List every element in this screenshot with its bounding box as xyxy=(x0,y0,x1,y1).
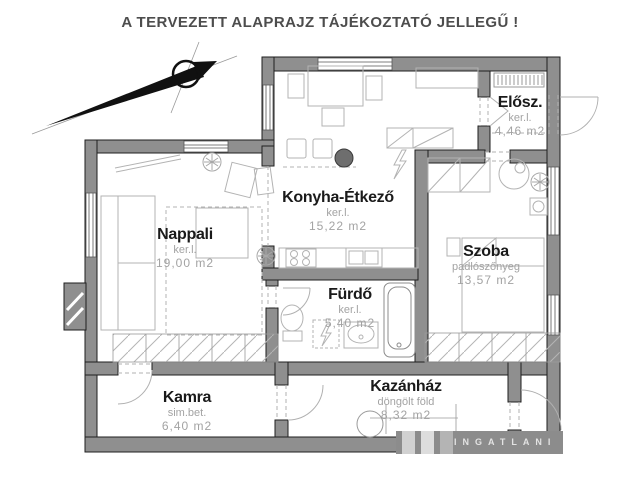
sofa-icon xyxy=(101,196,155,330)
room-label-szoba: Szoba padlószőnyeg 13,57 m2 xyxy=(452,243,520,287)
coat-rack-icon xyxy=(494,73,544,87)
window xyxy=(86,193,96,257)
room-name: Elősz. xyxy=(495,94,545,111)
room-material: ker.l. xyxy=(156,244,214,256)
room-area: 4,46 m2 xyxy=(495,125,545,138)
watermark-logo-icon xyxy=(421,422,434,465)
room-area: 6,40 m2 xyxy=(162,420,212,433)
room-label-furdo: Fürdő ker.l. 5,40 m2 xyxy=(325,286,375,330)
room-label-kamra: Kamra sim.bet. 6,40 m2 xyxy=(162,389,212,433)
room-label-kazanhaz: Kazánház döngölt föld 8,32 m2 xyxy=(370,378,441,422)
window xyxy=(548,295,559,335)
plant-icon xyxy=(257,247,275,265)
room-label-elosz: Elősz. ker.l. 4,46 m2 xyxy=(495,94,545,138)
room-name: Szoba xyxy=(452,243,520,260)
room-material: ker.l. xyxy=(325,304,375,316)
stove-icon xyxy=(286,249,316,267)
kitchen-cabinet-icon xyxy=(387,68,478,148)
plant-icon xyxy=(531,173,549,191)
watermark-logo-icon xyxy=(440,428,453,456)
room-area: 13,57 m2 xyxy=(452,274,520,287)
kitchen-counter-icon xyxy=(279,248,418,268)
room-material: ker.l. xyxy=(495,112,545,124)
room-name: Konyha-Étkező xyxy=(282,189,394,206)
bar-stool-icon xyxy=(313,139,332,158)
floor-plan-drawing xyxy=(0,0,640,480)
room-material: sim.bet. xyxy=(162,407,212,419)
room-label-konyha: Konyha-Étkező ker.l. 15,22 m2 xyxy=(282,189,394,233)
page-title: A TERVEZETT ALAPRAJZ TÁJÉKOZTATÓ JELLEGŰ… xyxy=(0,14,640,31)
room-name: Kamra xyxy=(162,389,212,406)
lightning-icon xyxy=(394,150,406,179)
room-material: ker.l. xyxy=(282,207,394,219)
watermark-logo-icon xyxy=(402,423,415,460)
room-area: 15,22 m2 xyxy=(282,220,394,233)
watermark-text: INGATLANI xyxy=(454,431,556,454)
window xyxy=(184,141,228,152)
column-icon xyxy=(335,149,353,167)
dining-table-icon xyxy=(288,66,382,126)
room-area: 5,40 m2 xyxy=(325,317,375,330)
window xyxy=(318,58,392,70)
room-material: padlószőnyeg xyxy=(452,261,520,273)
shelf-icon xyxy=(115,155,181,172)
plant-icon xyxy=(203,153,221,171)
sink-icon xyxy=(346,248,382,267)
bar-counter-icon xyxy=(283,139,356,167)
room-material: döngölt föld xyxy=(370,396,441,408)
north-arrow-icon xyxy=(32,42,237,134)
bathtub-icon xyxy=(384,283,415,357)
window xyxy=(263,85,273,130)
room-name: Nappali xyxy=(156,226,214,243)
room-label-nappali: Nappali ker.l. 19,00 m2 xyxy=(156,226,214,270)
window xyxy=(548,167,559,235)
flower-box-icon xyxy=(530,198,547,215)
room-area: 19,00 m2 xyxy=(156,257,214,270)
bar-stool-icon xyxy=(287,139,306,158)
floor-plan-page: A TERVEZETT ALAPRAJZ TÁJÉKOZTATÓ JELLEGŰ… xyxy=(0,0,640,480)
room-name: Kazánház xyxy=(370,378,441,395)
toilet-icon xyxy=(281,305,303,341)
armchair-icon xyxy=(225,162,257,197)
room-area: 8,32 m2 xyxy=(370,409,441,422)
room-name: Fürdő xyxy=(325,286,375,303)
tv-cabinet-icon xyxy=(254,167,273,195)
